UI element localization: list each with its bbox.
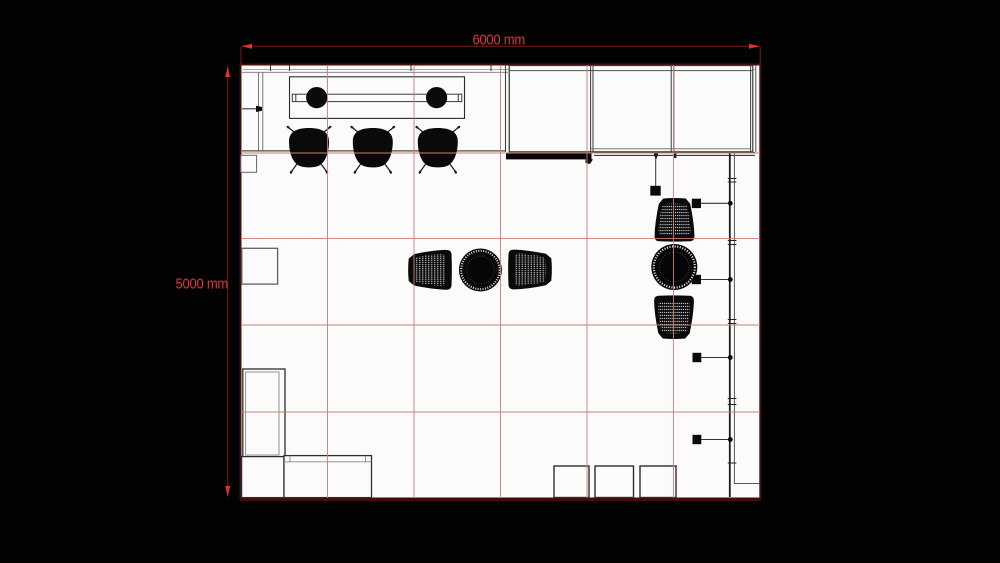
svg-text:5000 mm: 5000 mm <box>176 276 228 292</box>
svg-text:6000 mm: 6000 mm <box>472 32 524 48</box>
